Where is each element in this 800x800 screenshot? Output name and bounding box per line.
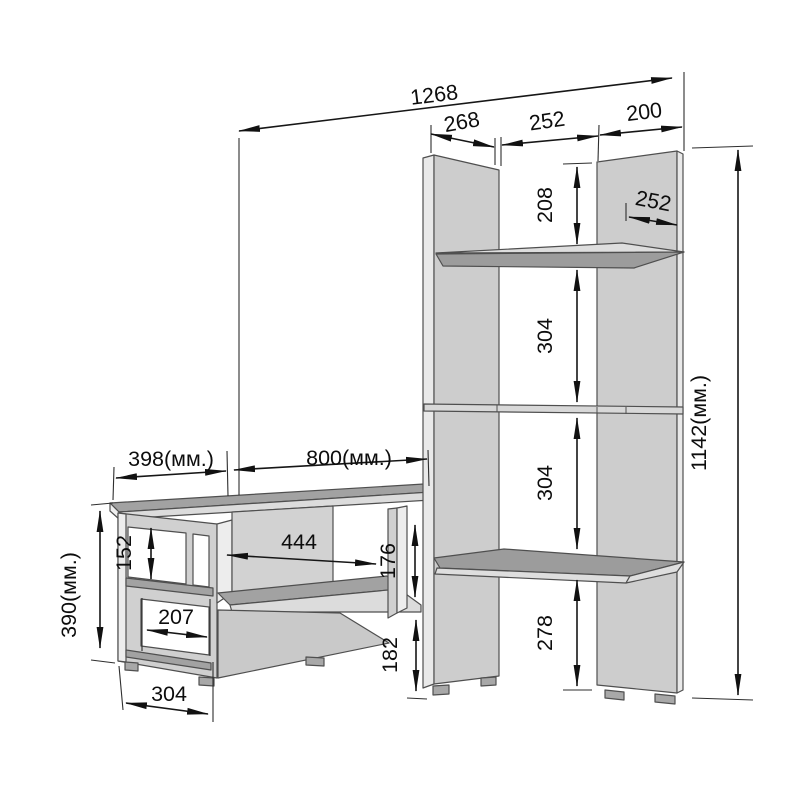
dim-label-panel-gap: 252 [528,107,567,136]
dim-label-gap-bottom: 278 [533,615,557,651]
drawing-canvas: 1268 268 252 200 252 208 304 304 278 114… [0,0,800,800]
stand-foot [199,677,214,686]
left-panel-face [434,155,499,684]
dim-label-right-panel-top: 200 [625,98,664,126]
dim-line-right-panel-top [600,127,682,135]
left-panel-edge [423,155,434,688]
stand-foot [125,662,138,671]
dim-label-stand-left-width: 398(мм.) [128,447,214,471]
right-panel-edge [677,151,683,693]
dim-label-lower-opening-width: 207 [158,605,194,629]
unit-foot [605,690,624,700]
dim-line-stand-left-width [116,471,226,478]
right-panel-face [597,151,677,693]
dim-label-gap-top: 208 [533,187,557,223]
furniture-dimension-drawing: 1268 268 252 200 252 208 304 304 278 114… [0,0,800,800]
cabinet-side-strip [217,520,232,603]
dim-label-opening-width: 444 [281,530,317,554]
dim-line-left-panel-depth [431,134,494,147]
dim-label-under-clearance: 182 [378,637,402,673]
dim-label-left-panel-depth: 268 [442,107,482,137]
dim-label-gap-lower: 304 [533,465,557,501]
dim-label-right-opening-height: 176 [376,543,400,579]
dim-label-left-opening-height: 152 [112,535,136,571]
unit-foot [433,685,449,695]
stand-foot [306,657,324,666]
stand-lower-body [218,610,389,678]
unit-foot [655,694,675,704]
dim-label-gap-upper: 304 [533,318,557,354]
dim-label-stand-height: 390(мм.) [57,552,81,638]
dim-label-base-width: 304 [151,682,187,706]
cabinet-opening-upper-right [193,534,209,587]
dim-label-stand-right-width: 800(мм.) [306,446,392,470]
unit-foot [481,677,496,686]
dim-label-unit-height: 1142(мм.) [687,375,711,471]
cabinet-opening-upper [128,527,186,584]
dim-line-panel-gap [502,136,598,145]
